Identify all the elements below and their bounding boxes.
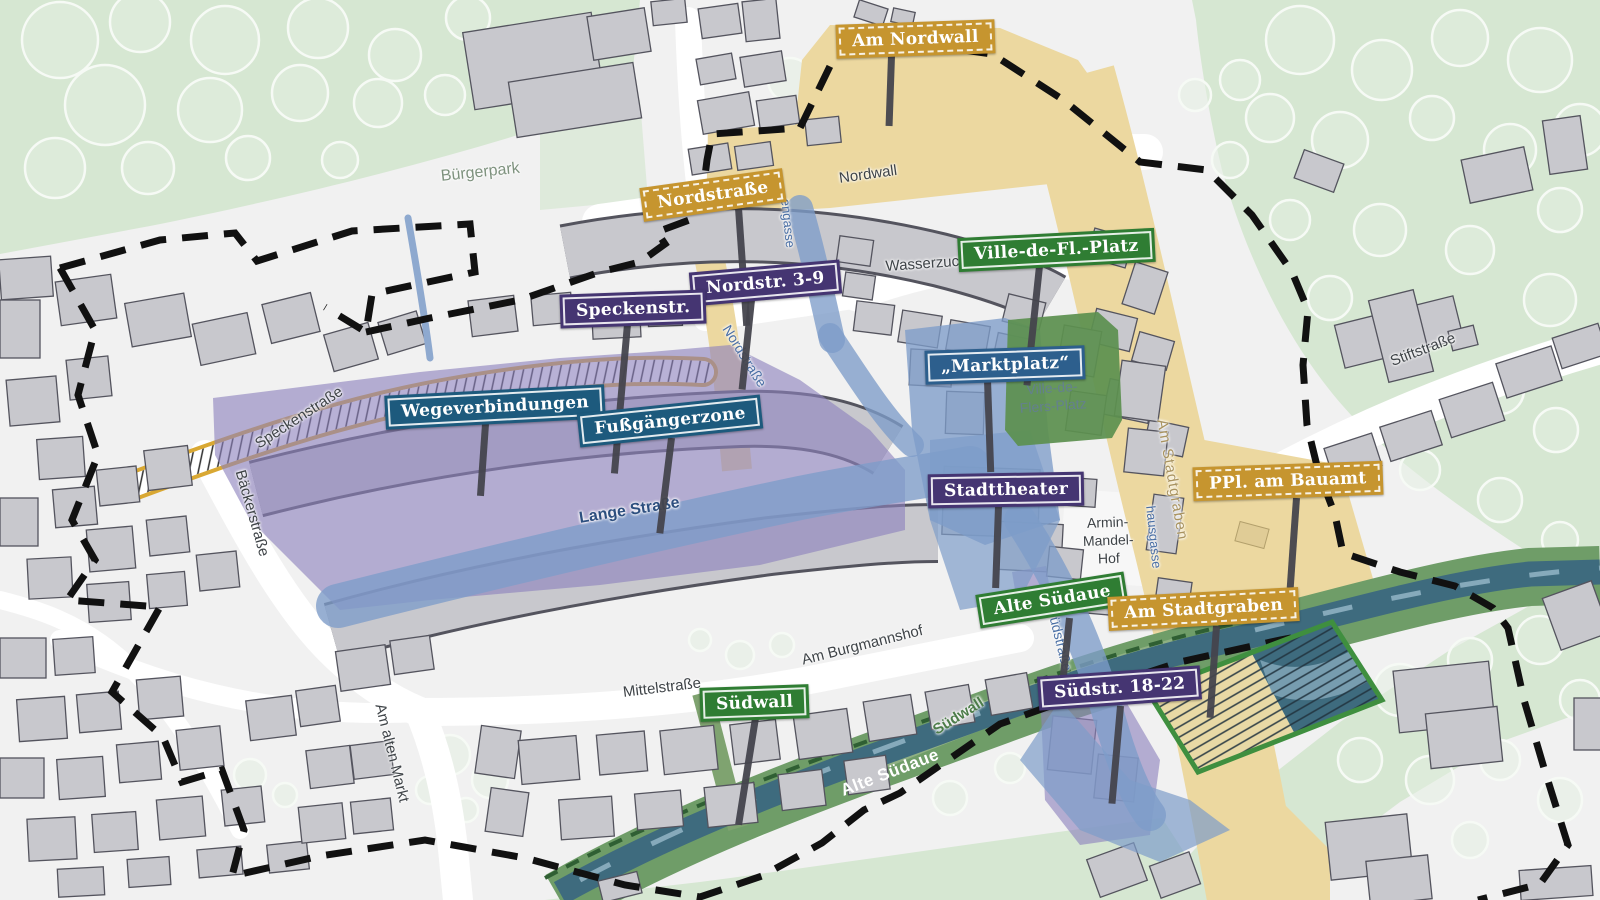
sign-marktplatz: „Marktplatz“ [924, 345, 1086, 385]
sign-label: PPl. am Bauamt [1196, 464, 1380, 498]
sign-label: „Marktplatz“ [928, 348, 1083, 381]
sign-stadttheater: Stadttheater [928, 472, 1085, 509]
sign-ppl-am-bauamt: PPl. am Bauamt [1192, 461, 1383, 502]
area-label-line: Mandel- [1083, 530, 1134, 550]
sign-suedwall: Südwall [699, 684, 809, 722]
city-plan-map: Bürgerpark Nordwall Wasserzucht Speckens… [0, 0, 1600, 900]
area-label-line: Armin- [1082, 512, 1133, 532]
sign-label: Am Stadtgraben [1110, 590, 1296, 628]
sign-label: Speckenstr. [563, 293, 704, 326]
area-label-armin-mandel-hof: Armin- Mandel- Hof [1082, 512, 1134, 568]
map-canvas [0, 0, 1600, 900]
sign-label: Ville-de-Fl.-Platz [960, 231, 1152, 269]
sign-label: Südwall [703, 687, 807, 719]
sign-am-nordwall: Am Nordwall [835, 19, 995, 59]
area-label-line: Hof [1083, 549, 1134, 569]
sign-speckenstr: Speckenstr. [559, 289, 706, 328]
sign-label: Stadttheater [931, 475, 1082, 506]
sign-label: Am Nordwall [839, 22, 993, 55]
